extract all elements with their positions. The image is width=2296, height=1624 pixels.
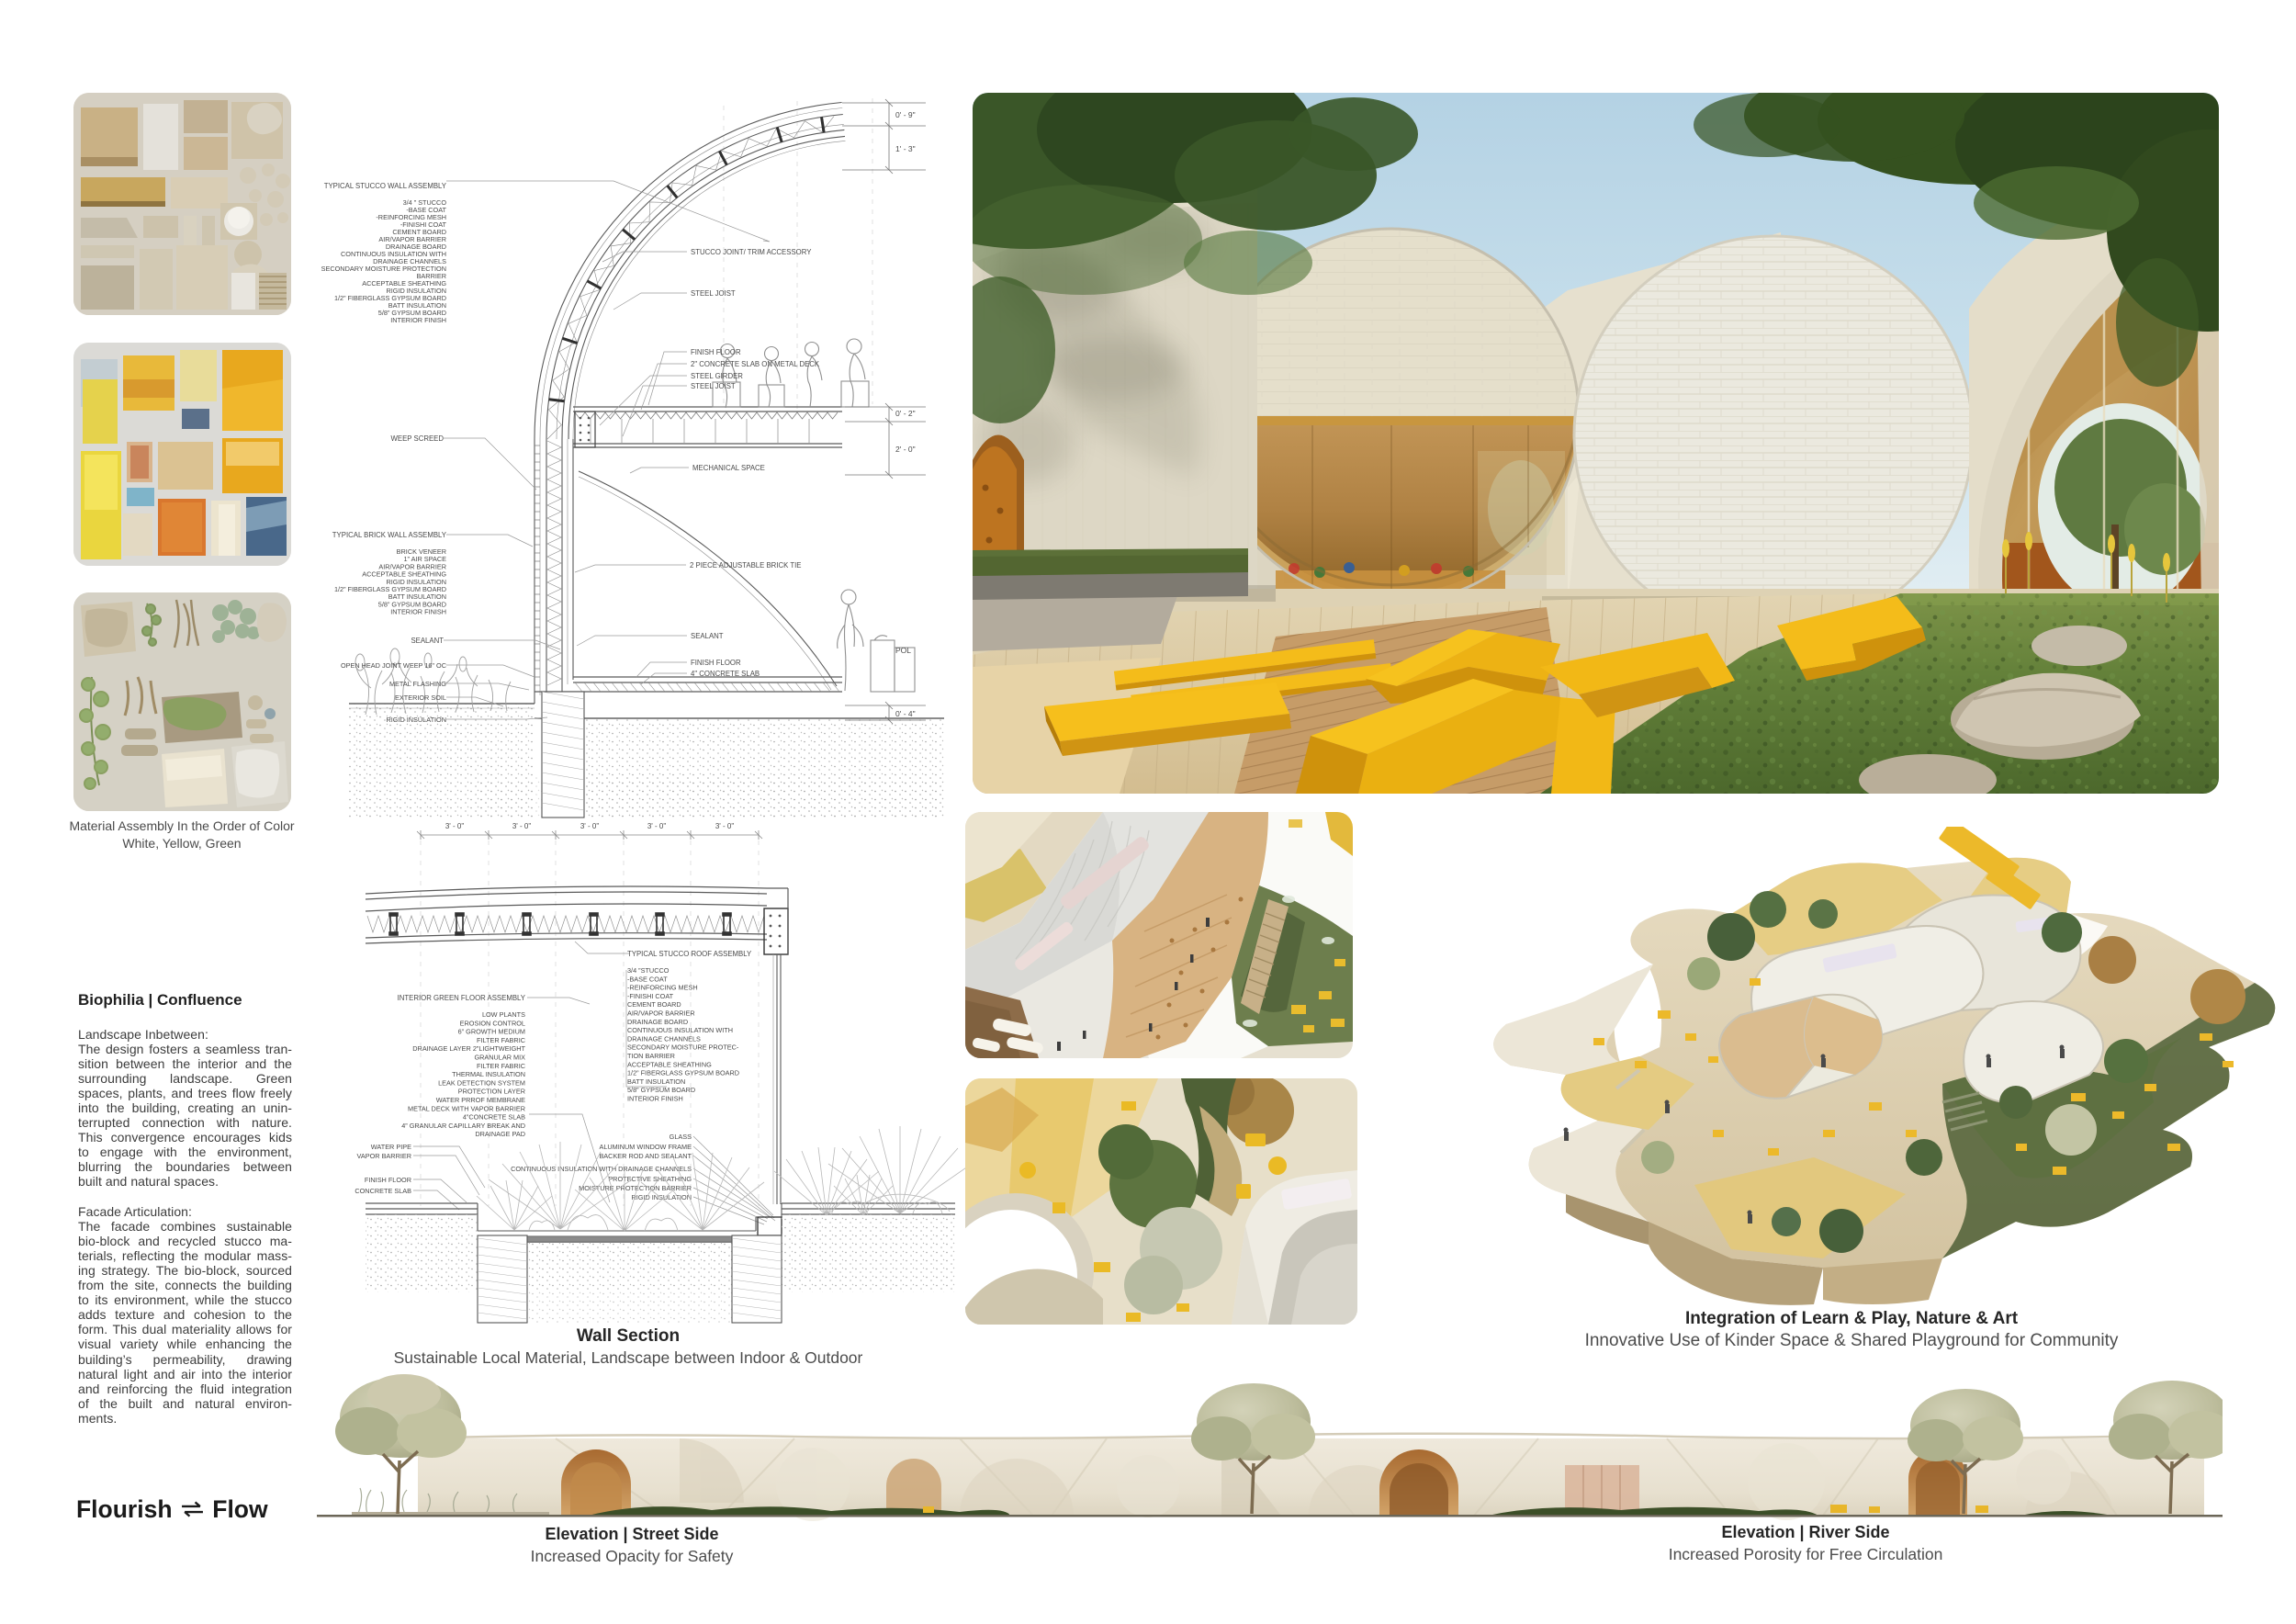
- svg-text:METAL DECK WITH VAPOR BARRIER: METAL DECK WITH VAPOR BARRIER: [408, 1104, 525, 1112]
- svg-text:TYPICAL STUCCO ROOF ASSEMBLY: TYPICAL STUCCO ROOF ASSEMBLY: [627, 950, 752, 958]
- svg-text:FILTER FABRIC: FILTER FABRIC: [477, 1036, 525, 1044]
- svg-text:POL: POL: [895, 646, 911, 655]
- svg-text:GRANULAR MIX: GRANULAR MIX: [474, 1054, 525, 1062]
- svg-text:STEEL JOIST: STEEL JOIST: [691, 289, 736, 298]
- svg-text:STUCCO JOINT/ TRIM ACCESSORY: STUCCO JOINT/ TRIM ACCESSORY: [691, 248, 812, 256]
- svg-text:2 PIECE ADJUSTABLE BRICK TIE: 2 PIECE ADJUSTABLE BRICK TIE: [690, 561, 801, 570]
- svg-text:DRAINAGE PAD: DRAINAGE PAD: [475, 1130, 525, 1138]
- svg-text:INTERIOR FINISH: INTERIOR FINISH: [390, 316, 446, 324]
- svg-text:1' - 3": 1' - 3": [895, 144, 916, 153]
- svg-text:6” GROWTH MEDIUM: 6” GROWTH MEDIUM: [458, 1028, 525, 1036]
- svg-text:STEEL GIRDER: STEEL GIRDER: [691, 372, 743, 380]
- svg-text:CONTINUOUS INSULATION WITH: CONTINUOUS INSULATION WITH: [627, 1026, 733, 1034]
- svg-text:2' - 0": 2' - 0": [895, 445, 916, 454]
- svg-text:DRAINAGE CHANNELS: DRAINAGE CHANNELS: [627, 1034, 701, 1043]
- svg-text:FINISH FLOOR: FINISH FLOOR: [691, 659, 741, 667]
- svg-text:CONCRETE SLAB: CONCRETE SLAB: [355, 1187, 411, 1195]
- svg-text:3' - 0": 3' - 0": [512, 822, 532, 830]
- svg-text:AIR/VAPOR BARRIER: AIR/VAPOR BARRIER: [627, 1009, 695, 1018]
- svg-text:WATER PRROF MEMBRANE: WATER PRROF MEMBRANE: [436, 1096, 525, 1104]
- svg-text:PROTECTIVE SHEATHING: PROTECTIVE SHEATHING: [608, 1175, 692, 1183]
- svg-text:3' - 0": 3' - 0": [445, 822, 465, 830]
- svg-text:GLASS: GLASS: [670, 1133, 692, 1141]
- svg-text:DRAINAGE LAYER 2”LIGHTWEIGHT: DRAINAGE LAYER 2”LIGHTWEIGHT: [412, 1044, 525, 1053]
- svg-text:BATT INSULATION: BATT INSULATION: [627, 1077, 685, 1086]
- svg-text:-REINFORCING MESH: -REINFORCING MESH: [627, 984, 698, 992]
- svg-text:FINISH FLOOR: FINISH FLOOR: [365, 1176, 411, 1184]
- svg-text:MOISTURE PROTECTION BARRIER: MOISTURE PROTECTION BARRIER: [579, 1184, 692, 1192]
- svg-text:MECHANICAL SPACE: MECHANICAL SPACE: [692, 464, 765, 472]
- svg-text:FILTER FABRIC: FILTER FABRIC: [477, 1062, 525, 1070]
- svg-text:INTERIOR FINISH: INTERIOR FINISH: [627, 1095, 683, 1103]
- svg-text:DRAINAGE BOARD: DRAINAGE BOARD: [627, 1018, 688, 1026]
- svg-text:OPEN HEAD JOINT WEEP 16" OC: OPEN HEAD JOINT WEEP 16" OC: [341, 661, 446, 670]
- svg-text:3' - 0": 3' - 0": [647, 822, 667, 830]
- svg-text:-BASE COAT: -BASE COAT: [627, 975, 668, 983]
- svg-text:INTERIOR FINISH: INTERIOR FINISH: [390, 608, 446, 616]
- svg-text:SECONDARY MOISTURE PROTEC-: SECONDARY MOISTURE PROTEC-: [627, 1043, 739, 1052]
- svg-text:FINISH FLOOR: FINISH FLOOR: [691, 348, 741, 356]
- svg-text:WATER PIPE: WATER PIPE: [371, 1143, 411, 1151]
- svg-text:3/4 ”STUCCO: 3/4 ”STUCCO: [627, 966, 670, 975]
- svg-text:INTERIOR GREEN FLOOR ASSEMBLY: INTERIOR GREEN FLOOR ASSEMBLY: [398, 994, 526, 1002]
- svg-text:RIGID INSULATION: RIGID INSULATION: [386, 716, 446, 724]
- svg-text:3' - 0": 3' - 0": [580, 822, 600, 830]
- svg-text:TYPICAL BRICK WALL ASSEMBLY: TYPICAL BRICK WALL ASSEMBLY: [332, 531, 447, 539]
- svg-text:LOW PLANTS: LOW PLANTS: [482, 1010, 525, 1019]
- svg-text:TYPICAL STUCCO WALL ASSEMBLY: TYPICAL STUCCO WALL ASSEMBLY: [324, 182, 447, 190]
- svg-text:5/8” GYPSUM BOARD: 5/8” GYPSUM BOARD: [627, 1086, 695, 1094]
- svg-text:STEEL JOIST: STEEL JOIST: [691, 382, 736, 390]
- svg-text:0' - 4": 0' - 4": [895, 709, 916, 718]
- svg-text:4”CONCRETE SLAB: 4”CONCRETE SLAB: [463, 1113, 525, 1122]
- svg-text:CONTINUOUS INSULATION WITH DRA: CONTINUOUS INSULATION WITH DRAINAGE CHAN…: [511, 1165, 692, 1173]
- svg-text:BACKER ROD AND SEALANT: BACKER ROD AND SEALANT: [599, 1152, 692, 1160]
- svg-text:4" CONCRETE SLAB: 4" CONCRETE SLAB: [691, 670, 760, 678]
- svg-text:0' - 9": 0' - 9": [895, 110, 916, 119]
- svg-text:LEAK DETECTION SYSTEM: LEAK DETECTION SYSTEM: [438, 1078, 525, 1087]
- svg-text:1/2” FIBERGLASS GYPSUM BOARD: 1/2” FIBERGLASS GYPSUM BOARD: [627, 1069, 739, 1077]
- svg-text:METAL FLASHING: METAL FLASHING: [389, 680, 446, 688]
- svg-text:EXTERIOR SOIL: EXTERIOR SOIL: [395, 694, 446, 702]
- svg-text:-FINISHI COAT: -FINISHI COAT: [627, 992, 674, 1000]
- svg-text:THERMAL INSULATION: THERMAL INSULATION: [452, 1070, 525, 1078]
- svg-text:EROSION CONTROL: EROSION CONTROL: [460, 1019, 525, 1027]
- svg-text:2" CONCRETE SLAB ON METAL DECK: 2" CONCRETE SLAB ON METAL DECK: [691, 360, 820, 368]
- svg-text:ACCEPTABLE SHEATHING: ACCEPTABLE SHEATHING: [627, 1060, 712, 1068]
- svg-text:VAPOR BARRIER: VAPOR BARRIER: [357, 1152, 411, 1160]
- svg-text:TION BARRIER: TION BARRIER: [627, 1052, 675, 1060]
- svg-text:PROTECTION LAYER: PROTECTION LAYER: [458, 1088, 525, 1096]
- svg-text:ALUMINUM WINDOW FRAME: ALUMINUM WINDOW FRAME: [599, 1143, 692, 1151]
- svg-text:SEALANT: SEALANT: [691, 632, 724, 640]
- svg-text:CEMENT BOARD: CEMENT BOARD: [627, 1000, 681, 1009]
- svg-text:3' - 0": 3' - 0": [715, 822, 735, 830]
- svg-text:4” GRANULAR CAPILLARY BREAK AN: 4” GRANULAR CAPILLARY BREAK AND: [401, 1122, 525, 1130]
- svg-text:WEEP SCREED: WEEP SCREED: [391, 434, 445, 443]
- svg-text:SEALANT: SEALANT: [411, 637, 444, 645]
- svg-text:0' - 2": 0' - 2": [895, 409, 916, 418]
